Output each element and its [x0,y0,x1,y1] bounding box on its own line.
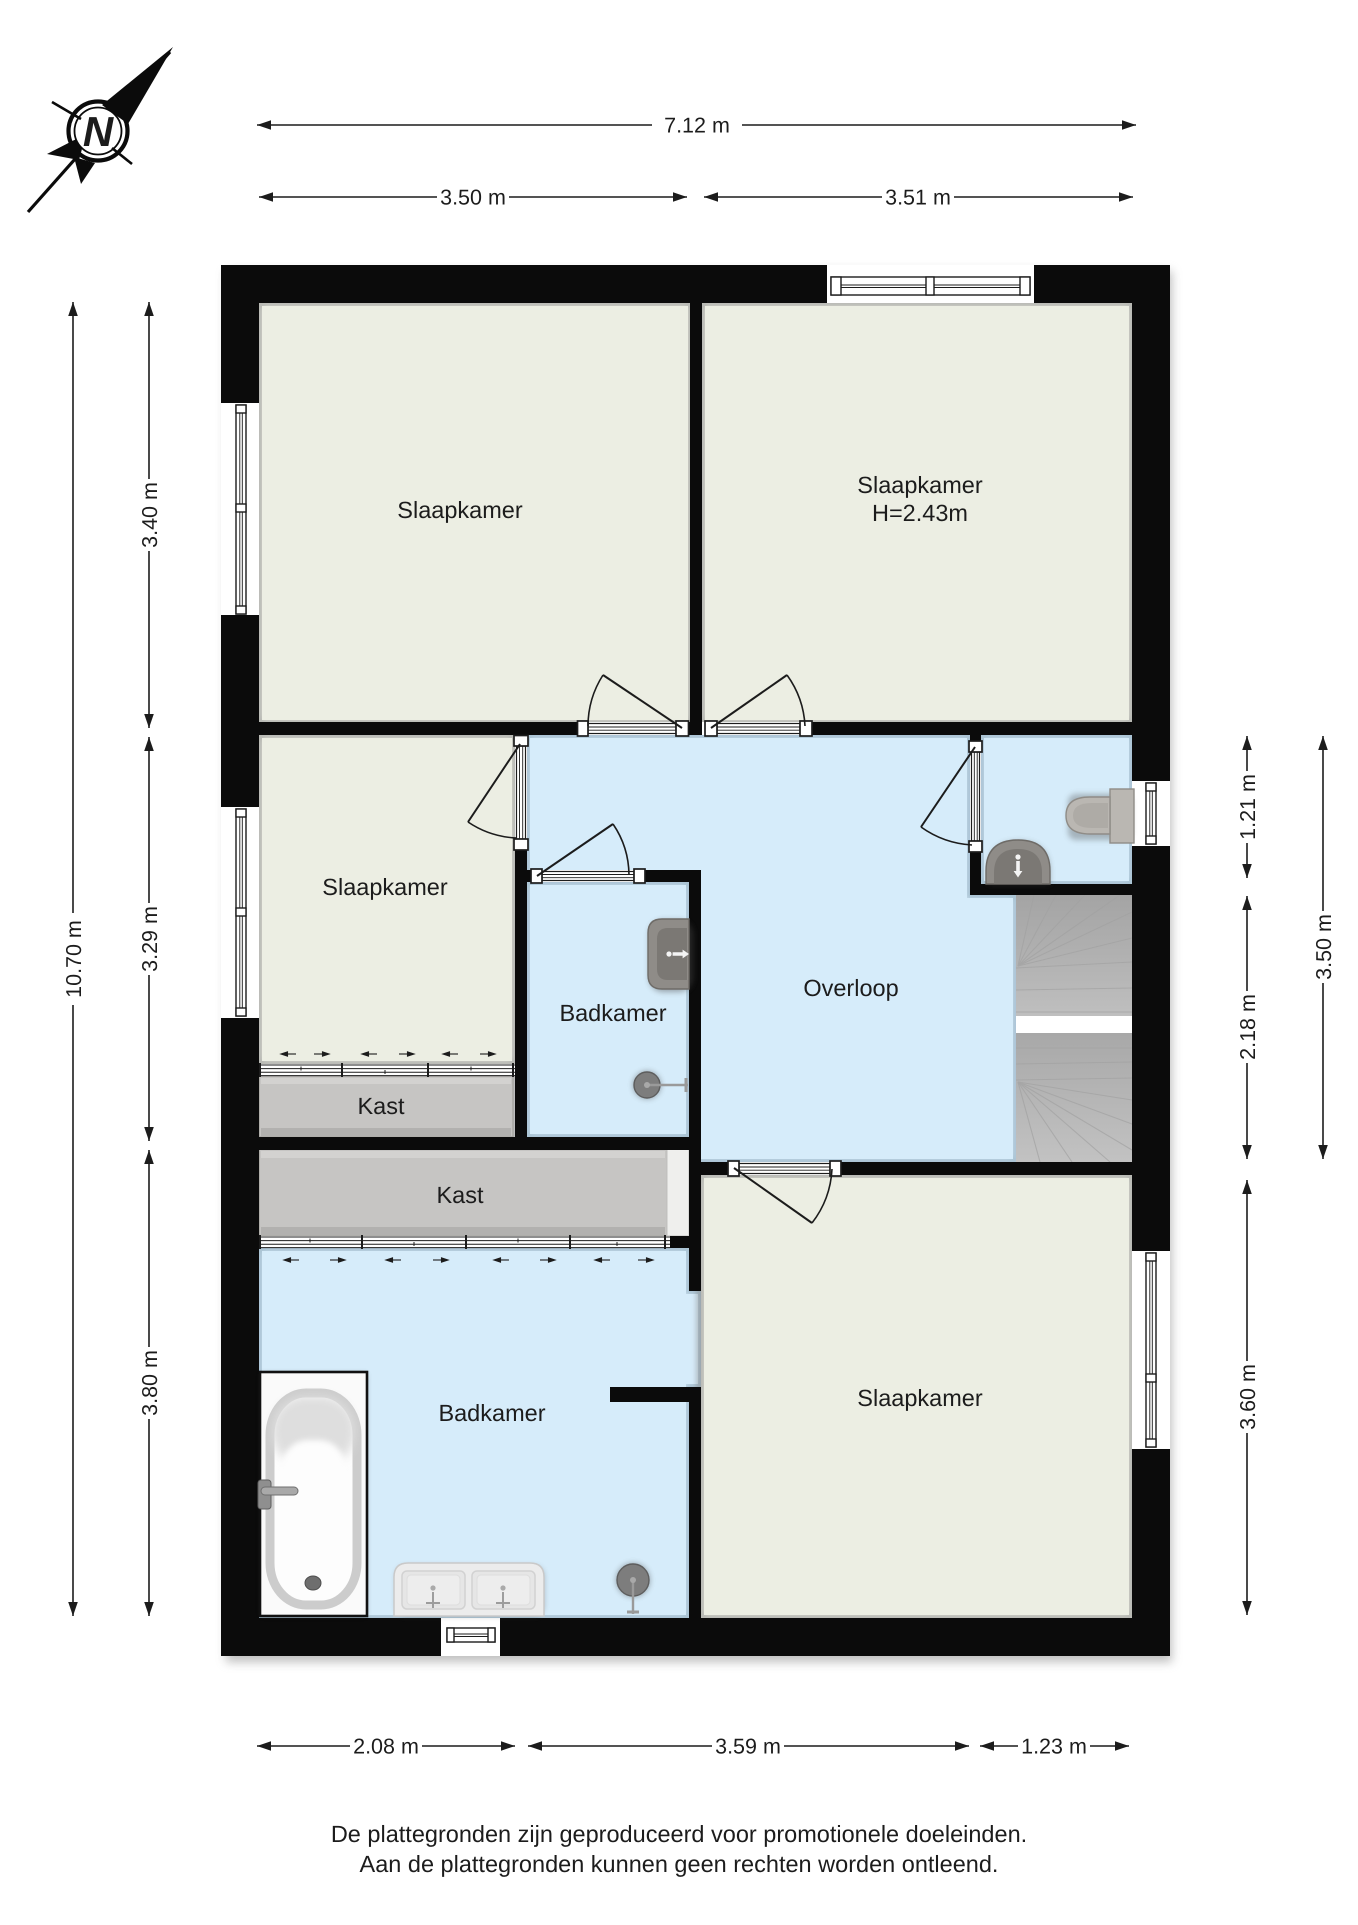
svg-text:Badkamer: Badkamer [559,1000,666,1026]
svg-text:3.40 m: 3.40 m [138,482,162,548]
svg-text:Kast: Kast [436,1182,483,1208]
svg-text:3.29 m: 3.29 m [138,906,162,972]
svg-text:Slaapkamer: Slaapkamer [857,472,983,498]
svg-text:3.80 m: 3.80 m [138,1350,162,1416]
svg-text:7.12 m: 7.12 m [664,114,730,138]
svg-text:Slaapkamer: Slaapkamer [322,874,448,900]
svg-text:2.08 m: 2.08 m [353,1735,419,1759]
svg-text:H=2.43m: H=2.43m [872,500,968,526]
svg-text:N: N [83,108,115,155]
svg-text:3.59 m: 3.59 m [715,1735,781,1759]
svg-text:1.23 m: 1.23 m [1021,1735,1087,1759]
svg-text:3.50 m: 3.50 m [440,186,506,210]
svg-text:Slaapkamer: Slaapkamer [857,1385,983,1411]
svg-text:De plattegronden zijn geproduc: De plattegronden zijn geproduceerd voor … [331,1821,1027,1847]
svg-text:10.70 m: 10.70 m [62,920,86,998]
svg-text:Aan de plattegronden kunnen ge: Aan de plattegronden kunnen geen rechten… [360,1851,999,1877]
svg-text:Overloop: Overloop [803,975,898,1001]
svg-text:Badkamer: Badkamer [438,1400,545,1426]
svg-text:3.60 m: 3.60 m [1236,1364,1260,1430]
svg-text:1.21 m: 1.21 m [1236,774,1260,840]
svg-text:Kast: Kast [357,1093,404,1119]
svg-text:3.51 m: 3.51 m [885,186,951,210]
svg-text:2.18 m: 2.18 m [1236,994,1260,1060]
svg-text:Slaapkamer: Slaapkamer [397,497,523,523]
svg-text:3.50 m: 3.50 m [1312,914,1336,980]
